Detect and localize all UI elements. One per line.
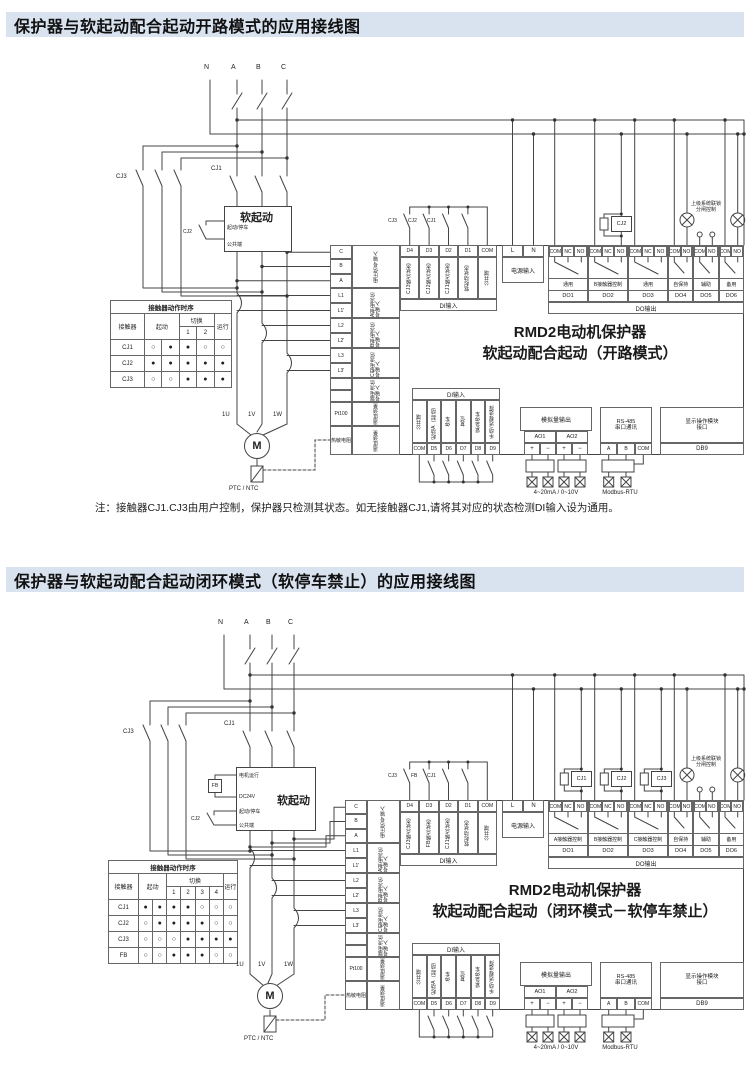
terminal-group-thermistor: 热敏电阻 温度测量 [345,981,400,1010]
terminal: D1 [458,800,477,812]
do-group-1: COMNCNO A接触器控制DO1 [548,800,588,857]
di-label-cell: CJ1触点状态 [439,812,458,854]
di-label: CJ1触点状态 [446,818,451,849]
do-group-6: COMNO 备用DO6 [719,800,744,857]
do-group-3: COMNCNO 通用DO3 [628,245,668,302]
thermistor-dashed-link [263,440,330,470]
terminal: COM [629,246,642,257]
di-label-cell: CJ1触点状态 [439,257,458,299]
terminal: L3 [330,348,352,363]
seq-cell: FB [109,948,139,964]
di-label: 紧急停车 [476,411,481,432]
terminal: L [502,245,523,257]
meter-icon [558,460,586,472]
seq-subheader: 2 [197,327,214,340]
terminal-group-label: 温度测量 [381,958,386,979]
do-name: DO1 [549,290,587,301]
display-interface-title: 显示操作模块 接口 [660,407,744,443]
rs485-title: RS-485 串口通讯 [600,962,652,998]
seq-dot: ○ [167,932,181,948]
snubber-icon [600,773,608,785]
seq-dot: ● [197,356,214,372]
seq-header: 起动 [139,874,167,900]
di-label-cell: 起动A（起动） [427,400,442,443]
terminal: NO [614,246,627,257]
phase-label: B [256,64,261,71]
terminal: L1' [330,303,352,318]
analog-output-wires [526,1010,586,1042]
panel-closed-loop: 保护器与软起动配合起动闭环模式（软停车禁止）的应用接线图 [0,555,750,1069]
seq-dot: ● [181,932,195,948]
terminal: D6 [441,443,456,455]
terminal-group-label: 温度测量 [374,403,379,424]
di-contact-label: CJ1 [427,218,436,224]
fb-relay-box: FB [208,779,222,793]
di-label: 复位 [461,971,466,982]
di-top-bar: DI输入 [400,299,497,311]
seq-dot: ● [181,916,195,932]
power-terminals: LN [502,245,544,257]
di-bottom-bar: DI输入 [412,943,500,955]
terminal: B [345,814,367,828]
terminal: A [345,829,367,843]
terminal: NO [681,801,693,812]
terminal: A [330,274,352,288]
seq-dot: ○ [195,900,209,916]
meter-icon [602,460,634,472]
di-contact-label: FB [411,773,417,779]
di-label-cell: 手动/远程选择 [485,955,500,998]
terminal: L2 [345,873,367,888]
do-wiring [555,120,738,245]
phase-label: C [288,619,293,626]
di-top-bar: DI输入 [400,854,497,866]
terminal: D2 [439,245,458,257]
do-name: DO6 [720,290,743,301]
terminal: NO [706,801,718,812]
seq-subheader: 3 [195,887,209,900]
di-label-cell: 紧急停车 [471,400,486,443]
terminal: COM [669,801,681,812]
seq-dot: ● [195,932,209,948]
terminal: D5 [427,443,442,455]
di-bottom-buttons [419,455,492,482]
terminal: + [556,998,572,1010]
terminal: COM [629,801,642,812]
seq-dot: ● [153,900,167,916]
di-bottom-bar: DI输入 [412,388,500,400]
terminal-group-label: C相电流信号输入 [371,349,381,377]
di-contact-label: CJ3 [388,218,397,224]
terminal: N [523,800,544,812]
terminal: C [345,800,367,814]
terminal: COM [549,801,562,812]
cj2-aux-contact [207,811,236,825]
power-input-wires [513,120,534,245]
rs485-title-line2: 串口通讯 [615,425,637,431]
motor-terminal: 1V [248,412,255,418]
terminal: D2 [439,800,458,812]
terminal: NO [731,246,743,257]
terminal: COM [635,443,652,455]
terminal: A [600,998,617,1010]
terminal: − [572,998,588,1010]
coil-cj3: CJ3 [651,771,672,787]
terminal: + [524,998,540,1010]
terminal: + [556,443,572,455]
protector-title: RMD2电动机保护器 软起动配合起动（闭环模式－软停车禁止） [410,880,740,922]
panel-open-loop: 保护器与软起动配合起动开路模式的应用接线图 [0,0,750,555]
di-label: CJ3触点状态 [407,818,412,849]
terminal-group-label: B相电流信号输入 [379,874,389,902]
ao-caption: 4~20mA / 0~10V [516,1045,596,1051]
di-label-cell: 公共端 [478,812,497,854]
seq-dot: ● [167,948,181,964]
do-group-2: COMNCNO B接触器控制DO2 [588,800,628,857]
terminal: B [330,259,352,273]
do-name: DO4 [669,290,692,301]
seq-cell: CJ3 [111,372,145,388]
terminal: NC [602,801,615,812]
terminal: − [540,443,556,455]
di-top-terminals: D4D3D2D1COM [400,245,497,257]
terminal-group-leakage: 漏电流信号输入 [345,933,400,957]
rs485-wires [602,455,643,487]
di-label-cell: 停车 [441,400,456,443]
analog-output-title: 模拟量输出 [520,407,592,431]
terminal: Pt100 [330,402,352,426]
do-label: 通用 [629,278,667,290]
table-row: CJ1 ● ● ● ● ○ ○ ○ [109,900,238,916]
di-label-cell: CJ3触点状态 [400,257,419,299]
seq-dot: ● [153,916,167,932]
indicator-lamp-icon [680,213,745,227]
seq-dot: ● [162,340,179,356]
di-label: CJ2触点状态 [427,263,432,294]
contactor-label-cj1: CJ1 [224,721,235,727]
ao-caption: 4~20mA / 0~10V [516,490,596,496]
terminal [345,945,367,957]
seq-dot: ● [214,372,231,388]
seq-dot: ○ [209,900,223,916]
seq-header: 起动 [145,314,180,340]
terminal: COM [589,246,602,257]
do-name: DO3 [629,290,667,301]
seq-dot: ● [195,948,209,964]
do-name: DO1 [549,845,587,856]
di-top-terminals: D4D3D2D1COM [400,800,497,812]
do-label: 辅助 [694,833,717,845]
indicator-lamp-icon [680,768,745,782]
di-label-cell: 公共端 [412,400,427,443]
do-label: 自保持 [669,833,692,845]
terminal: B [617,443,634,455]
terminal-group-label: 温度测量 [381,985,386,1006]
snubber-icon [600,218,608,230]
terminal [330,390,352,402]
ptc-label: PTC / NTC [244,1036,273,1042]
di-label-cell: FB触点状态 [419,812,438,854]
phase-label: N [218,619,223,626]
soft-starter-title: 软起动 [277,792,310,808]
breaker-icons [245,648,299,664]
terminal: C [330,245,352,259]
terminal: L3' [345,918,367,933]
seq-dot: ○ [209,948,223,964]
terminal-group-label: 漏电流信号输入 [379,934,389,956]
table-row: FB ○ ○ ● ● ● ○ ○ [109,948,238,964]
power-input-wires [513,675,534,800]
di-label: 软起动状态 [465,820,470,847]
terminal: COM [412,998,427,1010]
do-label: 通用 [549,278,587,290]
contactor-label-cj1: CJ1 [211,166,222,172]
protector-title: RMD2电动机保护器 软起动配合起动（开路模式） [420,322,740,364]
do-name: DO6 [720,845,743,856]
soft-starter-port: DC24V [239,794,255,800]
note-text: 注：接触器CJ1.CJ3由用户控制，保护器只检测其状态。如无接触器CJ1,请将其… [95,500,619,515]
do-label: C接触器控制 [629,833,667,845]
terminal: D4 [400,800,419,812]
thermistor-icon [251,466,263,482]
di-bottom-labels: 公共端起动A（起动）停车复位紧急停车手动/远程选择 [412,400,500,443]
protector-title-line2: 软起动配合起动（闭环模式－软停车禁止） [410,901,740,922]
interlock-line: 分闸控制 [680,763,732,769]
terminal: + [524,443,540,455]
di-label: 公共端 [417,414,422,430]
terminal-group-ct-c: L3 L3' C相电流信号输入 [330,348,400,378]
do-group-5: COMNO 辅助DO5 [693,800,718,857]
seq-dot: ○ [139,932,153,948]
terminal-group-leakage: 漏电流信号输入 [330,378,400,402]
seq-dot: ○ [145,372,162,388]
di-contact-label: CJ3 [388,773,397,779]
terminal [345,933,367,945]
seq-subheader: 1 [179,327,196,340]
rs485-title: RS-485 串口通讯 [600,407,652,443]
di-contact-label: CJ2 [408,218,417,224]
seq-dot: ○ [214,340,231,356]
terminal: COM [720,801,732,812]
ao-terminals: +−+− [524,443,588,455]
do-name: DO2 [589,845,627,856]
cj1-contacts [243,731,294,747]
terminal: NC [642,801,655,812]
seq-cell: CJ1 [111,340,145,356]
seq-header: 切换 [167,874,224,887]
do-group-4: COMNO 自保持DO4 [668,800,693,857]
soft-starter-port: 起动/停车 [227,224,248,231]
di-top-labels: CJ3触点状态FB触点状态CJ1触点状态软起动状态公共端 [400,812,497,854]
soft-starter-port: 公共端 [227,241,242,248]
terminal: D5 [427,998,442,1010]
seq-dot: ● [179,372,196,388]
interlock-stub-icon [697,232,715,237]
di-label: 手动/远程选择 [490,405,495,439]
terminal: COM [694,801,706,812]
terminal-group-label: A相电流信号输入 [379,844,389,872]
rs485-terminals: ABCOM [600,998,652,1010]
di-top-labels: CJ3触点状态CJ2触点状态CJ1触点状态软起动状态公共端 [400,257,497,299]
di-label: 软起动状态 [465,265,470,292]
terminal: COM [589,801,602,812]
external-terminal-icon [604,1032,631,1042]
terminal: D9 [485,998,500,1010]
do-name: DO2 [589,290,627,301]
interlock-stub-icon [697,787,715,792]
di-label: 停车 [446,971,451,982]
di-label: 复位 [461,416,466,427]
di-label: 手动/远程选择 [490,960,495,994]
seq-dot: ○ [153,932,167,948]
terminal: NC [562,246,575,257]
rs485-terminals: ABCOM [600,443,652,455]
snubber-icon [640,773,648,785]
seq-dot: ○ [145,340,162,356]
terminal: L3' [330,363,352,378]
di-bottom-terminals: COMD5D6D7D8D9 [412,443,500,455]
motor-icon: M [257,983,283,1009]
cj2-aux-contact [199,221,224,239]
soft-starter-title: 软起动 [240,209,273,225]
terminal: COM [478,245,497,257]
ao-terminals: +−+− [524,998,588,1010]
contactor-label-cj3: CJ3 [123,729,134,735]
terminal: L1' [345,858,367,873]
terminal: NO [654,246,667,257]
terminal: D8 [471,443,486,455]
seq-header: 运行 [214,314,231,340]
terminal-group-ct-b: L2 L2' B相电流信号输入 [330,318,400,348]
seq-dot: ● [139,900,153,916]
terminal [330,378,352,390]
terminal-group-label: 温度测量 [374,430,379,451]
di-label-cell: 公共端 [478,257,497,299]
do-label: A接触器控制 [549,833,587,845]
soft-starter-port: 起动/停车 [239,808,260,815]
terminal: D3 [419,245,438,257]
breaker-icons [232,93,292,109]
motor-terminal: 1W [273,412,282,418]
terminal: COM [549,246,562,257]
terminal: NO [706,246,718,257]
di-bottom-terminals: COMD5D6D7D8D9 [412,998,500,1010]
seq-cell: CJ2 [109,916,139,932]
di-label: CJ1触点状态 [446,263,451,294]
seq-dot: ● [181,900,195,916]
terminal: L2 [330,318,352,333]
do-group-2: COMNCNO B接触器控制DO2 [588,245,628,302]
seq-dot: ○ [209,916,223,932]
di-label-cell: 手动/远程选择 [485,400,500,443]
di-label-cell: 复位 [456,955,471,998]
seq-dot: ○ [197,340,214,356]
seq-dot: ○ [153,948,167,964]
soft-starter-port: 电机运行 [239,772,259,779]
di-label: FB触点状态 [427,819,432,847]
table-row: CJ3 ○ ○ ○ ● ● ● ● [109,932,238,948]
meter-icon [558,1015,586,1027]
di-top-contacts [404,207,488,245]
do-label: 备用 [720,833,743,845]
external-terminal-icon [527,477,585,487]
contactor-sequence-table: 接触器动作时序 接触器 起动 切换 运行 1 2 CJ1 ○ ● ● ○ ○ C… [110,300,232,388]
terminal-group-voltage: C B A 电压信号输入 [330,245,400,288]
ao-channel: AO2 [556,431,588,443]
di-label-cell: 停车 [441,955,456,998]
phase-label: C [281,64,286,71]
do-label: B接触器控制 [589,278,627,290]
terminal: L1 [330,288,352,303]
contactor-sequence-table: 接触器动作时序 接触器 起动 切换 运行 1 2 3 4 CJ1 ● ● ● ●… [108,860,238,964]
terminal-group-label: C相电流信号输入 [379,904,389,932]
seq-dot: ● [167,916,181,932]
terminal: NO [681,246,693,257]
terminal: COM [412,443,427,455]
di-label-cell: 公共端 [412,955,427,998]
terminal-group-label: 电压信号输入 [374,251,379,283]
terminal: L1 [345,843,367,858]
seq-dot: ○ [223,916,237,932]
terminal: NO [574,246,587,257]
power-label: 电源输入 [502,257,544,283]
terminal: 热敏电阻 [330,426,352,455]
seq-subheader: 1 [167,887,181,900]
meter-icon [526,460,554,472]
di-label: 公共端 [485,270,490,286]
terminal: D9 [485,443,500,455]
di-bottom-buttons [419,1010,492,1037]
meter-icon [602,1015,634,1027]
ao-channel: AO1 [524,431,556,443]
seq-cell: CJ3 [109,932,139,948]
terminal: NO [654,801,667,812]
seq-dot: ○ [139,948,153,964]
terminal: D4 [400,245,419,257]
do-label: 辅助 [694,278,717,290]
terminal: D6 [441,998,456,1010]
motor-icon: M [244,433,270,459]
di-label: 紧急停车 [476,966,481,987]
coil-cj2: CJ2 [611,771,632,787]
terminal: − [540,998,556,1010]
seq-cell: CJ1 [109,900,139,916]
seq-dot: ● [179,340,196,356]
external-terminal-icon [527,1032,585,1042]
terminal-group-thermistor: 热敏电阻 温度测量 [330,426,400,455]
terminal: COM [478,800,497,812]
terminal: D1 [458,245,477,257]
terminal-group-label: B相电流信号输入 [371,319,381,347]
ct-taps [237,296,330,371]
di-label-cell: CJ2触点状态 [419,257,438,299]
table-row: CJ3 ○ ○ ● ● ● [111,372,232,388]
seq-dot: ● [197,372,214,388]
terminal-group-label: 电压信号输入 [381,806,386,838]
power-terminals: LN [502,800,544,812]
phase-label: A [231,64,236,71]
phase-label: A [244,619,249,626]
terminal-group-pt100: Pt100 温度测量 [330,402,400,426]
analog-output-title: 模拟量输出 [520,962,592,986]
table-row: CJ1 ○ ● ● ○ ○ [111,340,232,356]
do-bar: DO输出 [548,302,744,314]
display-title-line2: 接口 [696,425,707,431]
contactor-label-cj2: CJ2 [183,229,192,235]
seq-dot: ● [223,932,237,948]
terminal-group-ct-b: L2 L2' B相电流信号输入 [345,873,400,903]
terminal-group-voltage: C B A 电压信号输入 [345,800,400,843]
